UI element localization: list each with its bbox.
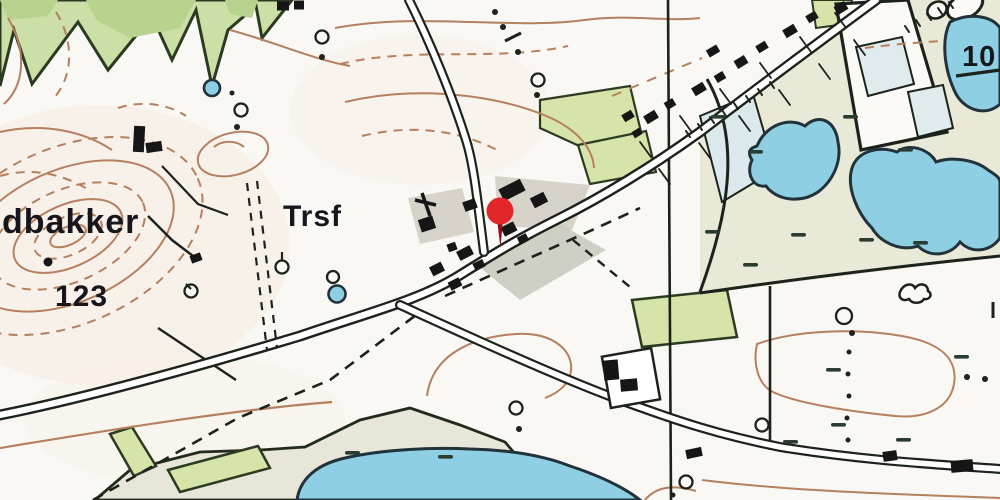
building bbox=[734, 55, 749, 69]
boundary-line bbox=[668, 0, 671, 500]
elevation-label-partial: 10 bbox=[962, 41, 996, 73]
well-icon bbox=[327, 271, 339, 283]
building bbox=[664, 98, 677, 110]
building bbox=[882, 450, 897, 462]
spot-elevation-dot bbox=[44, 258, 53, 267]
building bbox=[782, 24, 798, 38]
building bbox=[133, 126, 145, 153]
heath-tint bbox=[290, 35, 550, 185]
place-label: dbakker bbox=[2, 203, 139, 241]
well-icon bbox=[185, 285, 198, 298]
well-icon bbox=[316, 31, 329, 44]
dot-symbol bbox=[847, 394, 852, 399]
paper-tints bbox=[0, 35, 550, 485]
shaded-plot bbox=[478, 224, 606, 300]
dot-symbol bbox=[671, 493, 676, 498]
pin-head bbox=[487, 198, 514, 225]
well-icon bbox=[756, 419, 769, 432]
dot-symbol bbox=[964, 374, 970, 380]
pond bbox=[329, 286, 346, 303]
building bbox=[603, 359, 620, 380]
well-icon bbox=[235, 104, 248, 117]
well-icon bbox=[680, 476, 693, 489]
marsh-symbol bbox=[711, 115, 726, 119]
marsh-symbol bbox=[843, 115, 858, 119]
marsh-symbol bbox=[748, 150, 763, 154]
marsh-symbol bbox=[783, 440, 798, 444]
dot-symbol bbox=[847, 350, 852, 355]
elevation-label: 123 bbox=[55, 280, 108, 313]
farm-yard bbox=[408, 188, 474, 244]
marsh-symbol bbox=[826, 368, 841, 372]
dot-symbol bbox=[492, 9, 498, 15]
dot-symbol bbox=[500, 24, 506, 30]
lake bbox=[297, 448, 640, 500]
contour-line bbox=[702, 480, 1000, 498]
dot-symbol bbox=[846, 372, 851, 377]
building bbox=[643, 110, 659, 124]
building bbox=[620, 378, 638, 391]
marsh-symbol bbox=[898, 148, 913, 152]
marsh-symbol bbox=[954, 355, 969, 359]
building bbox=[456, 245, 474, 261]
topographic-map[interactable]: dbakker Trsf 123 10 bbox=[0, 0, 1000, 500]
building bbox=[706, 44, 720, 57]
marsh-symbol bbox=[831, 423, 846, 427]
dot-symbol bbox=[516, 426, 522, 432]
marsh-symbol bbox=[791, 233, 806, 237]
well-icon bbox=[836, 308, 852, 324]
well-icon bbox=[276, 261, 289, 274]
building bbox=[714, 71, 727, 83]
building bbox=[277, 2, 289, 11]
contour-line bbox=[335, 18, 700, 28]
contour-line bbox=[756, 331, 955, 416]
pond bbox=[204, 80, 220, 96]
marsh-symbol bbox=[913, 241, 928, 245]
building bbox=[691, 82, 707, 96]
dot-symbol bbox=[230, 91, 235, 96]
marsh-symbol bbox=[438, 455, 453, 459]
field-green-rect bbox=[632, 290, 737, 347]
building bbox=[951, 459, 974, 473]
marsh-symbol bbox=[345, 451, 360, 455]
well-icon bbox=[532, 74, 545, 87]
heath-tint bbox=[0, 105, 290, 385]
tick-symbol bbox=[505, 33, 521, 41]
dot-symbol bbox=[234, 124, 240, 130]
dot-symbol bbox=[846, 438, 851, 443]
dot-symbol bbox=[534, 92, 540, 98]
marsh-symbol bbox=[743, 263, 758, 267]
transformer-label: Trsf bbox=[283, 200, 342, 233]
dot-symbol bbox=[845, 416, 850, 421]
marsh-symbol bbox=[705, 230, 720, 234]
well-icon bbox=[510, 402, 523, 415]
marsh-symbol bbox=[896, 438, 911, 442]
rock-squiggle-icon bbox=[900, 284, 931, 302]
building bbox=[429, 262, 445, 277]
dot-symbol bbox=[849, 330, 855, 336]
dot-symbol bbox=[982, 376, 988, 382]
building bbox=[294, 1, 304, 10]
dot-symbol bbox=[319, 54, 325, 60]
contour-line bbox=[427, 334, 571, 398]
map-viewport[interactable]: dbakker Trsf 123 10 bbox=[0, 0, 1000, 500]
dot-symbol bbox=[515, 49, 521, 55]
marsh-symbol bbox=[859, 238, 874, 242]
building bbox=[446, 242, 457, 253]
building bbox=[685, 447, 703, 459]
building bbox=[755, 41, 769, 54]
